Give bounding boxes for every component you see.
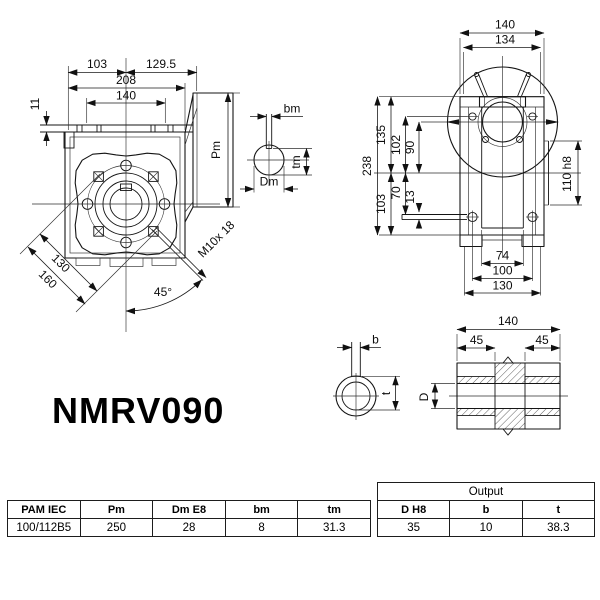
thread-label-m10: M10x 18: [195, 218, 238, 261]
pam-value-cell: 28: [153, 519, 226, 537]
dim-label-74: 74: [496, 249, 510, 263]
dim-label-11: 11: [28, 97, 42, 110]
dim-label-bm: bm: [284, 102, 301, 116]
output-value-cell: 38.3: [522, 519, 594, 537]
dim-label-dm: Dm: [260, 175, 279, 189]
front-view: 103 129.5 208 140 11 Pm 130 160 M10x 18 …: [20, 57, 240, 332]
output-header-cell: D H8: [378, 501, 450, 519]
dim-label-100: 100: [492, 264, 512, 278]
gearbox-dimension-sheet: 103 129.5 208 140 11 Pm 130 160 M10x 18 …: [0, 0, 600, 600]
dim-label-208: 208: [116, 73, 136, 87]
dim-label-140-top: 140: [495, 18, 515, 32]
dim-label-70: 70: [389, 186, 403, 200]
output-bore-section: b t: [333, 333, 400, 421]
dim-label-d: D: [417, 392, 431, 401]
dim-label-t: t: [379, 391, 393, 395]
pam-header-cell: bm: [225, 501, 298, 519]
dim-label-134: 134: [495, 33, 515, 47]
pam-header-cell: tm: [298, 501, 371, 519]
output-header-cell: t: [522, 501, 594, 519]
dim-label-90: 90: [403, 141, 417, 155]
output-table-title: Output: [378, 483, 595, 501]
dim-label-160: 160: [36, 267, 60, 291]
dim-label-tm: tm: [289, 155, 303, 168]
output-table-value-row: 35 10 38.3: [378, 519, 595, 537]
output-table: Output D H8 b t 35 10 38.3: [377, 482, 595, 537]
dim-label-pm: Pm: [209, 141, 223, 159]
dim-label-103: 103: [87, 57, 107, 71]
output-hollow-shaft: 140 45 45 D: [417, 314, 568, 435]
pam-header-cell: PAM IEC: [8, 501, 81, 519]
gearbox-body: [65, 132, 185, 258]
output-header-cell: b: [450, 501, 522, 519]
output-table-title-row: Output: [378, 483, 595, 501]
pam-table-header-row: PAM IEC Pm Dm E8 bm tm: [8, 501, 371, 519]
dim-label-13: 13: [403, 190, 417, 204]
dim-label-45-left: 45: [470, 333, 484, 347]
pam-header-cell: Dm E8: [153, 501, 226, 519]
pam-value-cell: 100/112B5: [8, 519, 81, 537]
dim-label-130-side: 130: [492, 279, 512, 293]
output-value-cell: 35: [378, 519, 450, 537]
side-view: 140 134 238 135 103 102 90 70 13 110 h8 …: [360, 18, 582, 296]
dim-label-140: 140: [116, 89, 136, 103]
output-table-header-row: D H8 b t: [378, 501, 595, 519]
dim-label-140-shaft: 140: [498, 314, 518, 328]
input-shaft-section: bm tm Dm: [240, 102, 312, 193]
dim-label-129-5: 129.5: [146, 57, 176, 71]
dim-label-103-side: 103: [374, 194, 388, 214]
pam-table: PAM IEC Pm Dm E8 bm tm 100/112B5 250 28 …: [7, 500, 371, 537]
pam-value-cell: 250: [80, 519, 153, 537]
model-title: NMRV090: [52, 390, 224, 432]
dim-label-110h8: 110 h8: [560, 156, 574, 192]
dim-label-102: 102: [389, 135, 403, 155]
pam-table-value-row: 100/112B5 250 28 8 31.3: [8, 519, 371, 537]
dim-label-45-right: 45: [535, 333, 549, 347]
dim-label-238: 238: [360, 156, 374, 176]
pam-value-cell: 8: [225, 519, 298, 537]
dim-label-135: 135: [374, 125, 388, 145]
pam-value-cell: 31.3: [298, 519, 371, 537]
angle-label-45: 45°: [154, 285, 172, 299]
output-value-cell: 10: [450, 519, 522, 537]
dim-label-b: b: [372, 333, 379, 347]
pam-header-cell: Pm: [80, 501, 153, 519]
